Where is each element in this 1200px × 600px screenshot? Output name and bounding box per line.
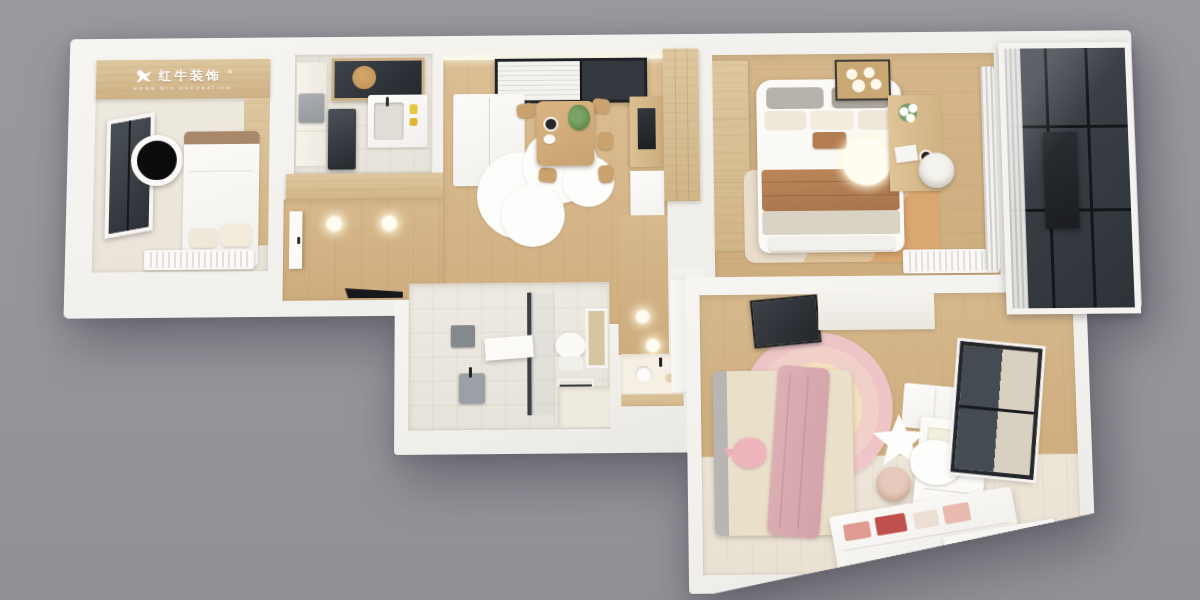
single-bed (182, 131, 260, 268)
desk-flowers (896, 103, 922, 125)
tv-sideboard (630, 96, 664, 167)
hall-door-gap (345, 288, 403, 298)
hongniu-bull-icon (134, 68, 154, 86)
plate-dark (543, 117, 558, 132)
dining-chair (597, 165, 614, 184)
secondary-bedroom: 红牛装饰 ® HONG NIU DECORATION (92, 59, 271, 273)
corridor-ceiling-light (636, 311, 648, 323)
brand-name-en: HONG NIU DECORATION (134, 85, 233, 91)
round-pendant-lamp (842, 137, 891, 185)
kids-dark-glass-panel (750, 294, 822, 348)
bed2-blanket-band (184, 131, 260, 144)
vanity-apron (621, 394, 684, 407)
square-ceiling-lamp (835, 59, 891, 100)
kitchen-dark-fridge (328, 109, 356, 170)
balcony (998, 42, 1141, 315)
bath-step (558, 386, 611, 427)
plate-white (543, 134, 555, 144)
hall-storage-band (286, 173, 445, 200)
entry-door (289, 211, 303, 269)
pillow-cream (764, 111, 806, 131)
kitchen-sink (374, 102, 404, 139)
pillow-gray (766, 87, 824, 109)
kitchen-faucet (386, 97, 389, 107)
tv-screen (638, 108, 656, 149)
pillow-brown-accent (812, 132, 846, 149)
kitchen-gray-box (298, 93, 324, 122)
vanity-faucet (659, 358, 662, 367)
kitchen-sink-counter (368, 94, 428, 147)
hall-ceiling-light (382, 216, 396, 230)
dining-chair (598, 132, 614, 150)
dining-table (536, 101, 594, 166)
pink-whale-plush (732, 438, 767, 469)
dining-chair (538, 167, 557, 183)
render-canvas: 红牛装饰 ® HONG NIU DECORATION (0, 0, 1200, 600)
dining-chair (516, 102, 536, 119)
registered-mark: ® (227, 68, 233, 75)
brand-name-cn: 红牛装饰 (158, 67, 222, 85)
toilet (555, 332, 585, 372)
kids-window (950, 341, 1042, 480)
kitchen (294, 54, 433, 174)
pillow-cream (810, 110, 854, 130)
desk-book (894, 145, 918, 164)
bed2-pillow (189, 228, 217, 248)
closet-sliding-doors (663, 48, 701, 201)
balcony-curtain (1004, 49, 1028, 309)
bedroom2-radiator (144, 249, 254, 270)
bath-mirror (484, 335, 534, 361)
apartment-floorplan: 红牛装饰 ® HONG NIU DECORATION (52, 22, 1159, 597)
hall-ceiling-light (327, 217, 341, 231)
balcony-dark-panel (1043, 132, 1080, 229)
kitchen-yellow-item (410, 104, 418, 114)
bath-faucet (469, 367, 472, 377)
kids-chair (876, 467, 911, 502)
bathroom (408, 282, 610, 430)
bath-shelf (451, 325, 475, 347)
master-bedroom (712, 53, 1001, 307)
master-chair (918, 152, 955, 188)
brand-logo-band: 红牛装饰 ® HONG NIU DECORATION (96, 59, 271, 99)
kids-bed (713, 370, 856, 536)
foot-bench (769, 236, 895, 251)
kids-shelf-band (818, 293, 935, 330)
kids-wing-walls (685, 274, 1097, 594)
corridor (618, 215, 669, 355)
vanity-mirror-light (647, 340, 659, 352)
kids-pink-blanket (766, 365, 830, 539)
bath-washbasin (459, 373, 485, 403)
dining-chair (591, 98, 610, 114)
bed2-pillow (220, 224, 251, 247)
kids-bedroom (699, 292, 1082, 575)
vanity-sink (635, 366, 652, 383)
round-wall-lamp (131, 135, 184, 186)
kitchen-yellow-item (410, 118, 418, 126)
table-plant (568, 105, 590, 131)
bed-fold-band (762, 210, 900, 235)
door-handle (297, 237, 300, 244)
bathroom-window (585, 308, 608, 368)
